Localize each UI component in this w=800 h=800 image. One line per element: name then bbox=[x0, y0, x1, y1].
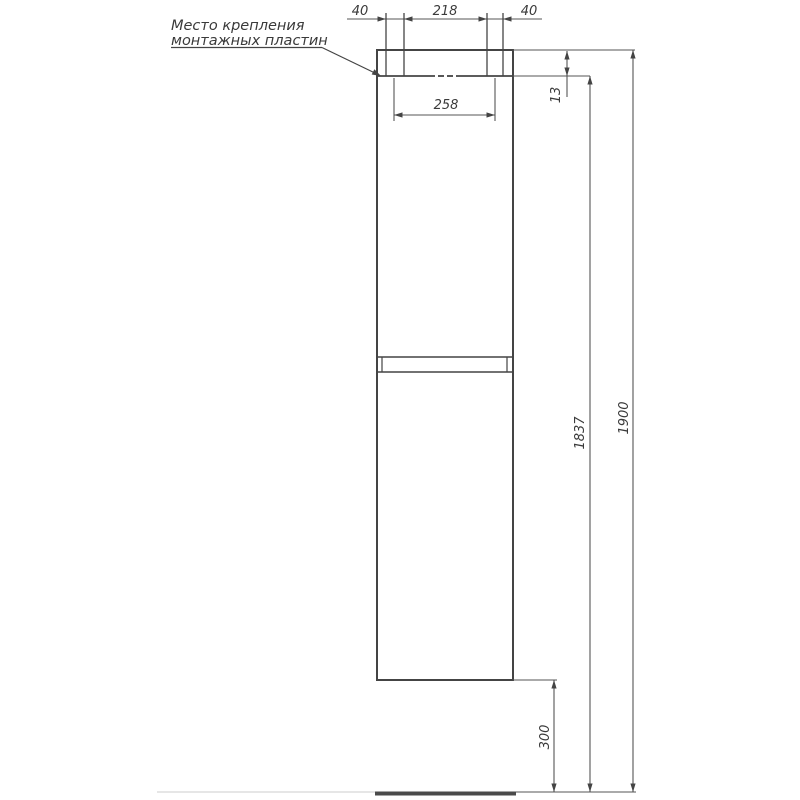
dimension-258: 258 bbox=[394, 78, 495, 121]
dim-label-40-right: 40 bbox=[521, 4, 538, 19]
arrowhead-icon bbox=[479, 16, 488, 21]
dimension-13: 13 bbox=[549, 51, 570, 103]
dim-label-13: 13 bbox=[549, 87, 564, 104]
dim-label-1900: 1900 bbox=[617, 401, 632, 434]
arrowhead-icon bbox=[551, 680, 556, 689]
dim-label-258: 258 bbox=[434, 98, 459, 113]
callout-text-line2: монтажных пластин bbox=[171, 33, 328, 49]
callout-text-line1: Место крепления bbox=[171, 18, 305, 34]
dim-label-218: 218 bbox=[433, 4, 458, 19]
arrowhead-icon bbox=[404, 16, 413, 21]
callout-leader-line bbox=[322, 48, 377, 75]
dim-label-40-left: 40 bbox=[352, 4, 369, 19]
cabinet-body-rect bbox=[377, 50, 513, 680]
arrowhead-icon bbox=[587, 784, 592, 793]
door-gap-band bbox=[378, 357, 512, 372]
arrowhead-icon bbox=[630, 50, 635, 59]
arrowhead-icon bbox=[630, 784, 635, 793]
arrowhead-icon bbox=[564, 68, 569, 77]
dim-label-300: 300 bbox=[538, 725, 553, 750]
arrowhead-icon bbox=[378, 16, 387, 21]
arrowhead-icon bbox=[503, 16, 512, 21]
dim-label-1837: 1837 bbox=[573, 416, 588, 450]
floor-line bbox=[157, 792, 516, 794]
dimension-300: 300 bbox=[538, 680, 557, 792]
arrowhead-icon bbox=[551, 784, 556, 793]
drawing-canvas: Место крепления монтажных пластин 40 218… bbox=[0, 0, 800, 800]
cabinet-technical-drawing: Место крепления монтажных пластин 40 218… bbox=[0, 0, 800, 800]
dimension-1837: 1837 bbox=[573, 76, 593, 792]
arrowhead-icon bbox=[487, 112, 496, 117]
arrowhead-icon bbox=[394, 112, 403, 117]
arrowhead-icon bbox=[587, 76, 592, 85]
arrowhead-icon bbox=[564, 51, 569, 60]
mounting-plate-callout: Место крепления монтажных пластин bbox=[171, 18, 381, 76]
dimension-1900: 1900 bbox=[617, 50, 636, 792]
cabinet-outline bbox=[377, 50, 513, 680]
